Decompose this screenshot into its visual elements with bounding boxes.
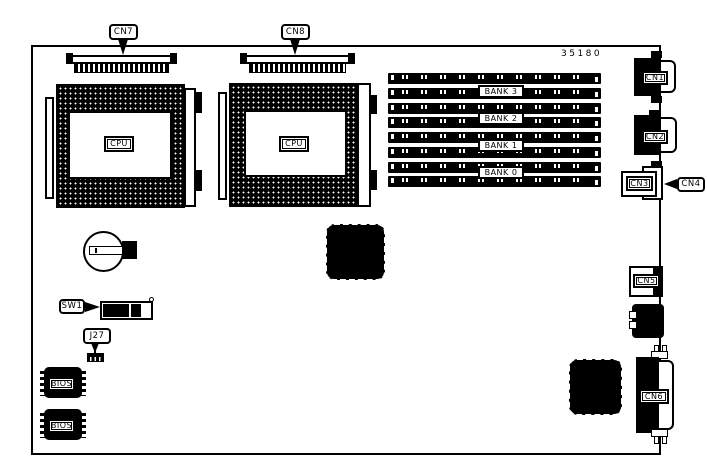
cn2-label-text: CN2 [646, 133, 664, 141]
cn7-end-tab-right [170, 53, 177, 64]
callout-j27-pointer [91, 343, 99, 353]
bios2-label: BIOS [48, 419, 75, 433]
cn1-mounting-tab-top [651, 51, 662, 58]
bank3-label-text: BANK 3 [485, 88, 518, 96]
callout-cn7: CN7 [109, 24, 138, 40]
bios1-label-text: BIOS [51, 380, 72, 388]
cpu2-clip-bottom [371, 170, 377, 190]
cn3-label-text: CN3 [630, 180, 648, 188]
cpu2-clip-top [371, 95, 377, 114]
cn8-end-tab-right [348, 53, 355, 64]
audio-jack-pin-1 [629, 311, 637, 319]
cpu2-label: CPU [279, 136, 309, 152]
cn2-label: CN2 [642, 130, 668, 144]
bios1-label: BIOS [48, 377, 75, 391]
cn8-pin-row [249, 63, 346, 73]
callout-sw1-label: SW1 [62, 302, 83, 311]
cpu2-retention-bar-left [218, 92, 227, 200]
cpu2-retention-bar-right [357, 83, 371, 207]
cpu1-retention-bar-left [45, 97, 54, 199]
cn7-end-tab-left [66, 53, 73, 64]
cn6-screw-nub-bottom-1 [654, 436, 659, 444]
cpu1-clip-bottom [196, 170, 202, 191]
cn3-label: CN3 [626, 176, 653, 191]
cpu1-label-text: CPU [110, 140, 128, 148]
bank0-label-text: BANK 0 [485, 169, 518, 177]
motherboard-layout-diagram: 35180 CN7 CN8 CPU CPU BANK 3 BAN [0, 0, 707, 467]
sw1-switch-positions [103, 304, 150, 317]
qfp-chip-1 [326, 224, 385, 280]
qfp-chip-2 [569, 359, 622, 415]
cn1-label: CN1 [642, 71, 668, 85]
cn5-label-text: CN5 [637, 277, 655, 285]
bank1-label-text: BANK 1 [485, 142, 518, 150]
callout-cn4-pointer [664, 179, 677, 189]
cn5-label: CN5 [633, 274, 660, 288]
j27-jumper-block [87, 353, 104, 362]
callout-cn8: CN8 [281, 24, 310, 40]
simm-slot-1 [388, 73, 601, 84]
callout-j27-label: J27 [90, 332, 105, 341]
battery-clip-mount [122, 241, 137, 259]
cpu2-label-text: CPU [285, 140, 303, 148]
callout-cn8-pointer [290, 39, 300, 55]
bank2-label-text: BANK 2 [485, 115, 518, 123]
cpu1-clip-top [196, 92, 202, 113]
battery-clip-arm [89, 246, 124, 255]
callout-cn4: CN4 [677, 177, 705, 192]
callout-cn7-pointer [118, 39, 128, 55]
callout-sw1: SW1 [59, 299, 85, 314]
bios2-label-text: BIOS [51, 422, 72, 430]
cn6-label: CN6 [639, 389, 669, 404]
bank1-label: BANK 1 [478, 139, 524, 152]
callout-cn4-label: CN4 [681, 180, 700, 189]
callout-cn7-label: CN7 [114, 28, 133, 37]
bank2-label: BANK 2 [478, 112, 524, 125]
audio-jack-pin-2 [629, 321, 637, 329]
cn1-mounting-tab-bottom [651, 96, 662, 103]
bank3-label: BANK 3 [478, 85, 524, 98]
callout-j27: J27 [83, 328, 111, 344]
cpu1-label: CPU [104, 136, 134, 152]
cn7-pin-row [74, 63, 169, 73]
cn1-label-text: CN1 [646, 74, 664, 82]
part-number: 35180 [561, 49, 602, 59]
cn6-label-text: CN6 [645, 393, 663, 401]
cpu1-retention-bar-right [184, 88, 196, 207]
bank0-label: BANK 0 [478, 166, 524, 179]
cn8-end-tab-left [240, 53, 247, 64]
cn6-screw-nub-bottom-2 [662, 436, 667, 444]
sw1-orientation-dot [149, 297, 154, 302]
callout-cn8-label: CN8 [286, 28, 305, 37]
callout-sw1-pointer [85, 302, 100, 312]
